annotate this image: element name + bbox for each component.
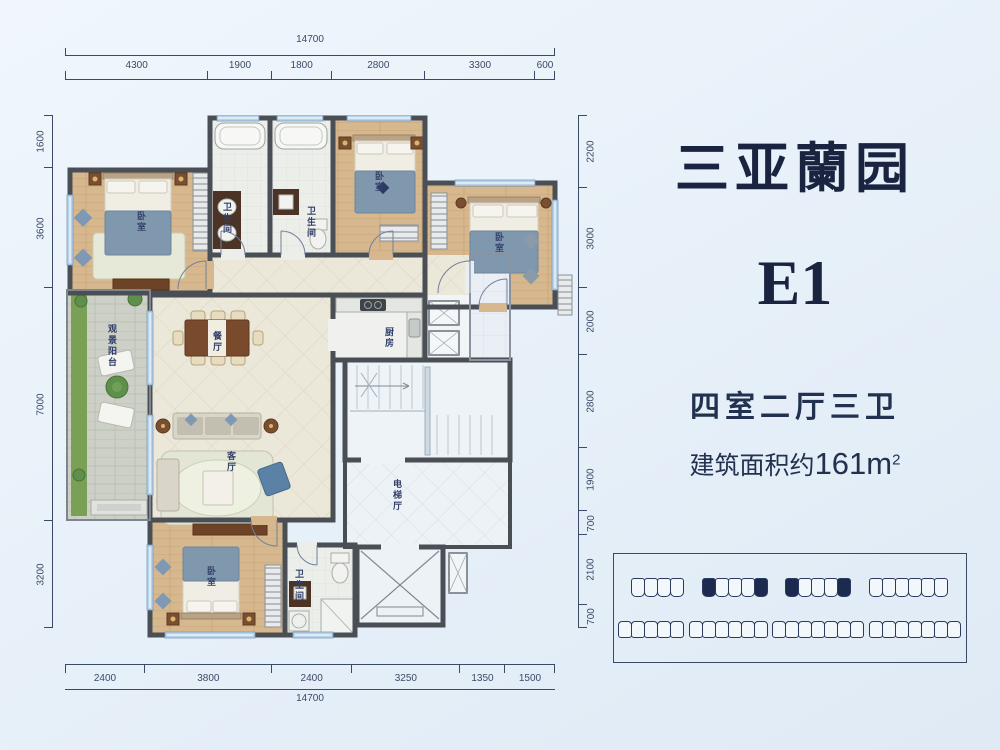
dim-right-segments: 220030002000280019007002100700 [578,115,603,628]
keyplan-unit [798,578,812,597]
keyplan-unit [631,578,645,597]
keyplan-unit-highlighted [785,578,799,597]
dim-segment: 1350 [460,665,505,689]
keyplan-unit [772,621,786,638]
keyplan-unit [657,621,671,638]
keyplan-unit [908,621,922,638]
plant [75,295,87,307]
keyplan-building [690,621,768,638]
keyplan-building [703,578,768,597]
balcony-grass [71,294,87,516]
nightstand [456,198,466,208]
keyplan-unit [824,578,838,597]
keyplan-unit [702,621,716,638]
keyplan-unit [869,578,883,597]
dim-segment: 3600 [30,168,52,288]
pillow [139,181,167,193]
keyplan-building [619,621,684,638]
chair [253,331,263,345]
dim-segment: 700 [579,605,603,628]
keyplan-unit [631,621,645,638]
keyplan-unit [895,578,909,597]
site-key-plan [613,553,967,663]
keyplan-unit [715,578,729,597]
pillow [387,143,413,154]
dim-segment: 4300 [65,55,208,79]
dim-segment: 7000 [30,288,52,521]
wardrobe [431,193,447,249]
dim-segment: 3800 [145,665,272,689]
keyplan-building [870,578,948,597]
dim-segment: 1800 [272,55,332,79]
bed-headboard [468,197,540,203]
pillow [213,601,237,612]
dim-segment: 2400 [272,665,352,689]
dim-bottom-total: 14700 [65,689,555,713]
dim-segment: 2000 [579,288,603,355]
dim-top-total: 14700 [65,34,555,56]
toilet-tank [309,219,327,230]
area-prefix: 建筑面积约 [690,452,815,480]
dim-segment: 2100 [579,535,603,605]
bed-blanket [183,547,239,581]
keyplan-unit [869,621,883,638]
floorplan-sheet: 14700 43001900180028003300600 2400380024… [0,0,1000,750]
layout-spec: 四室二厅三卫 [615,382,975,426]
pillow [507,205,537,217]
keyplan-unit [618,621,632,638]
stove [360,299,386,311]
keyplan-unit-highlighted [837,578,851,597]
dim-segment: 1900 [579,448,603,511]
keyplan-building [786,578,851,597]
keyplan-unit [811,621,825,638]
dim-left-segments: 1600360070003200 [30,115,53,628]
dim-segment: 700 [579,511,603,534]
keyplan-unit [657,578,671,597]
nightstand [541,198,551,208]
dim-total-label: 14700 [65,693,555,704]
keyplan-unit [882,621,896,638]
pillow [473,205,503,217]
pillow [357,143,383,154]
bed-headboard [181,613,241,619]
keyplan-unit [908,578,922,597]
keyplan-unit [670,578,684,597]
keyplan-unit [715,621,729,638]
plant [73,469,85,481]
furniture-living [156,413,291,525]
keyplan-unit [934,621,948,638]
sink [218,199,236,215]
ac-platform [558,275,572,315]
area-value: 161m [815,446,893,481]
kitchen-sink [409,319,420,337]
keyplan-unit [728,578,742,597]
dim-segment: 1600 [30,115,52,168]
dim-top-segments: 43001900180028003300600 [65,55,555,80]
dim-segment: 3250 [352,665,460,689]
keyplan-unit [728,621,742,638]
toilet [332,563,348,583]
dim-segment: 2800 [579,355,603,448]
sink [279,195,293,209]
keyplan-unit-highlighted [702,578,716,597]
dim-segment: 2200 [579,115,603,188]
keyplan-building [773,621,864,638]
area-line: 建筑面积约161m2 [615,446,975,482]
keyplan-unit [785,621,799,638]
dim-segment: 1500 [505,665,555,689]
keyplan-building [870,621,961,638]
keyplan-unit [670,621,684,638]
dim-segment: 3000 [579,188,603,288]
coffee-table [203,471,233,505]
keyplan-unit [947,621,961,638]
dim-segment: 600 [535,55,555,79]
dim-total-label: 14700 [65,34,555,45]
toilet-tank [331,553,349,563]
keyplan-unit [837,621,851,638]
project-title: 三亚蘭园 [615,124,975,203]
keyplan-unit [882,578,896,597]
dim-bottom-segments: 240038002400325013501500 [65,664,555,689]
keyplan-unit [921,621,935,638]
dim-segment: 1900 [208,55,271,79]
dim-segment: 2800 [332,55,425,79]
dim-segment: 3300 [425,55,535,79]
floor-plan-drawing [65,115,575,640]
keyplan-unit [934,578,948,597]
tv-cabinet [193,524,267,535]
wardrobe [265,565,281,627]
keyplan-unit [811,578,825,597]
keyplan-unit [798,621,812,638]
wardrobe [380,225,418,241]
keyplan-unit [754,621,768,638]
keyplan-row [614,578,966,597]
keyplan-unit [689,621,703,638]
wardrobe [193,173,208,251]
unit-code: E1 [615,246,975,320]
sink [294,587,306,599]
keyplan-unit [824,621,838,638]
table-runner [208,320,226,356]
toilet [310,229,326,249]
pillow [187,601,211,612]
keyplan-unit [644,578,658,597]
bed-headboard [103,173,173,179]
area-superscript: 2 [892,452,900,469]
chaise [157,459,179,511]
pillow [107,181,135,193]
dresser [113,279,169,290]
keyplan-unit [895,621,909,638]
keyplan-building [632,578,684,597]
keyplan-unit-highlighted [754,578,768,597]
keyplan-unit [850,621,864,638]
elevator-hall-floor [345,460,510,547]
keyplan-unit [644,621,658,638]
dim-segment: 2400 [65,665,145,689]
keyplan-unit [741,621,755,638]
dim-segment: 3200 [30,521,52,628]
keyplan-row [614,621,966,638]
chair [173,331,183,345]
bed-headboard [353,135,415,141]
bed-blanket [105,211,171,255]
keyplan-unit [741,578,755,597]
keyplan-unit [921,578,935,597]
